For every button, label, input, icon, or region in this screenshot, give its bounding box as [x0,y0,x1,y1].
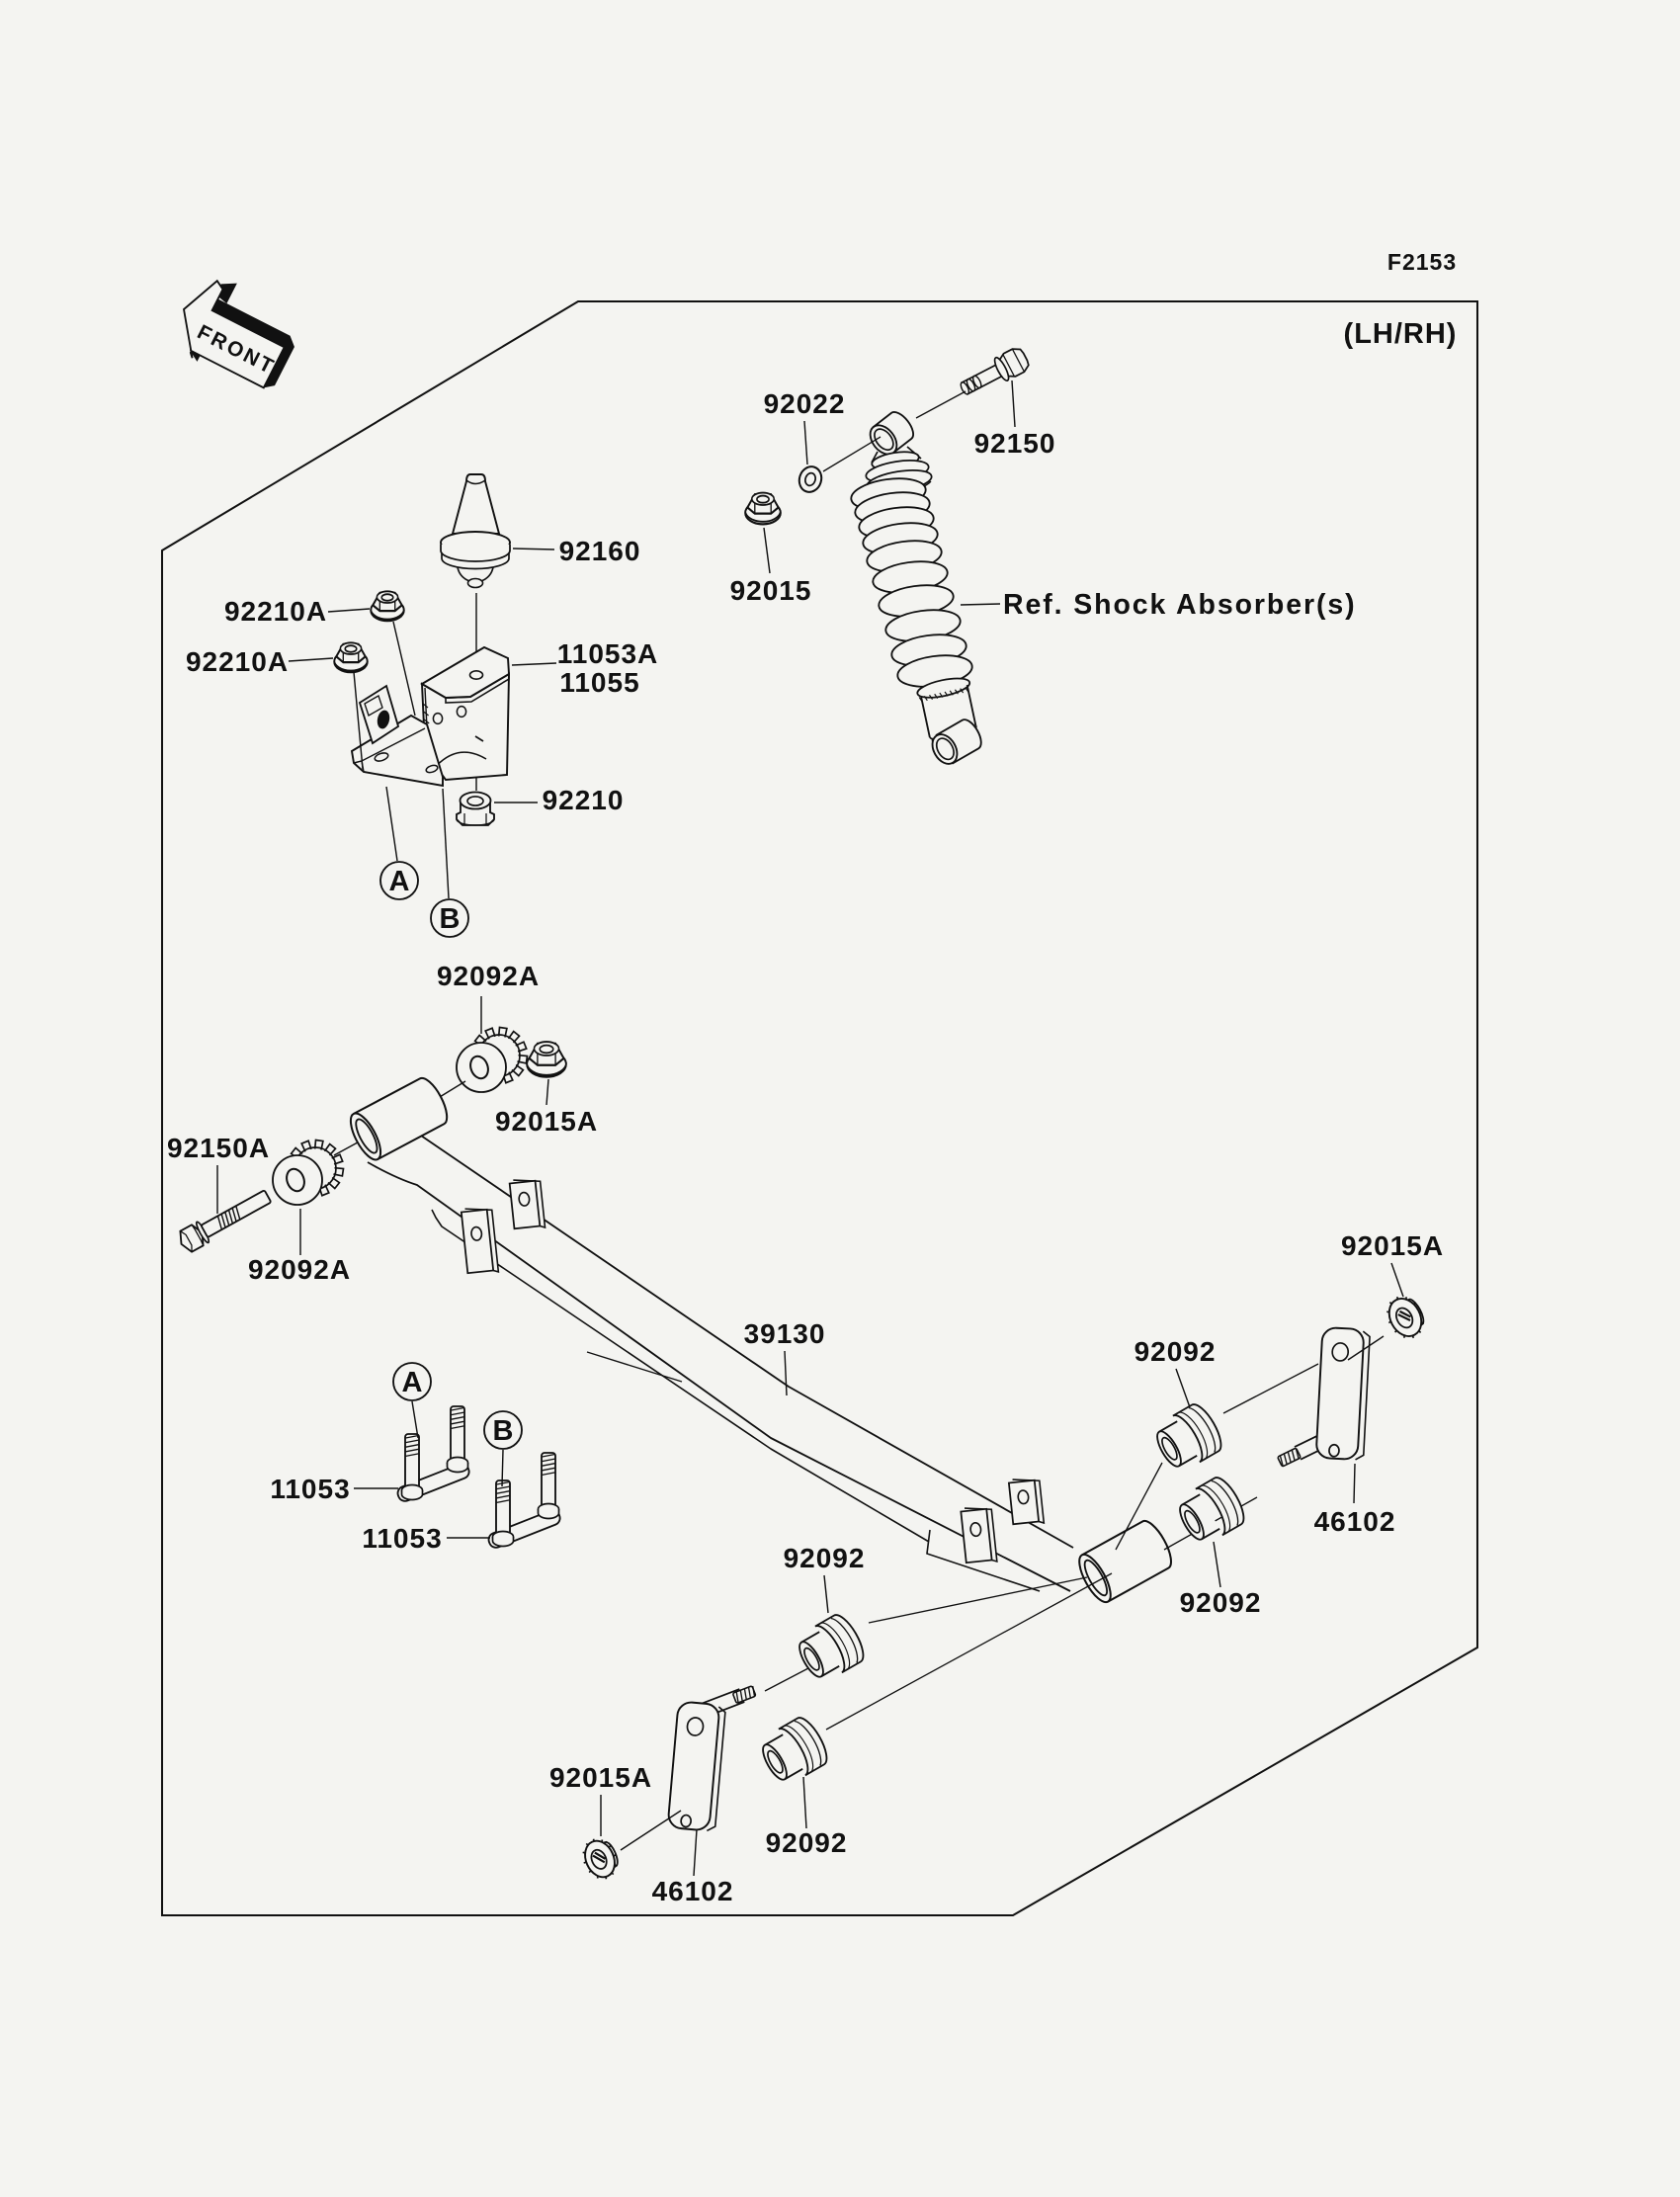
svg-text:46102: 46102 [652,1876,734,1906]
svg-text:92160: 92160 [559,536,641,566]
svg-text:46102: 46102 [1314,1506,1396,1537]
svg-text:92092: 92092 [766,1827,848,1858]
svg-text:92092: 92092 [784,1543,866,1573]
svg-text:92210A: 92210A [224,596,327,627]
svg-text:11055: 11055 [559,667,639,698]
svg-text:92092A: 92092A [248,1254,351,1285]
svg-text:F2153: F2153 [1387,249,1457,275]
svg-text:(LH/RH): (LH/RH) [1344,318,1458,350]
svg-text:92015A: 92015A [1341,1230,1444,1261]
svg-text:92092A: 92092A [437,961,540,991]
svg-text:B: B [493,1415,514,1447]
svg-text:92210: 92210 [543,785,625,815]
svg-text:92092: 92092 [1180,1587,1262,1618]
svg-text:92015: 92015 [730,575,812,606]
svg-text:92150A: 92150A [167,1133,270,1163]
svg-text:92015A: 92015A [549,1762,652,1793]
svg-text:92015A: 92015A [495,1106,598,1137]
svg-text:92092: 92092 [1134,1336,1217,1367]
svg-text:39130: 39130 [744,1318,826,1349]
svg-text:92210A: 92210A [186,646,289,677]
svg-text:A: A [389,866,410,897]
svg-text:11053A: 11053A [557,638,659,669]
svg-text:92022: 92022 [764,388,846,419]
svg-text:92150: 92150 [974,428,1056,459]
svg-text:11053: 11053 [362,1523,442,1554]
svg-text:11053: 11053 [270,1474,350,1504]
svg-text:B: B [440,903,461,935]
svg-text:Ref. Shock Absorber(s): Ref. Shock Absorber(s) [1003,589,1356,621]
svg-text:A: A [402,1367,423,1398]
